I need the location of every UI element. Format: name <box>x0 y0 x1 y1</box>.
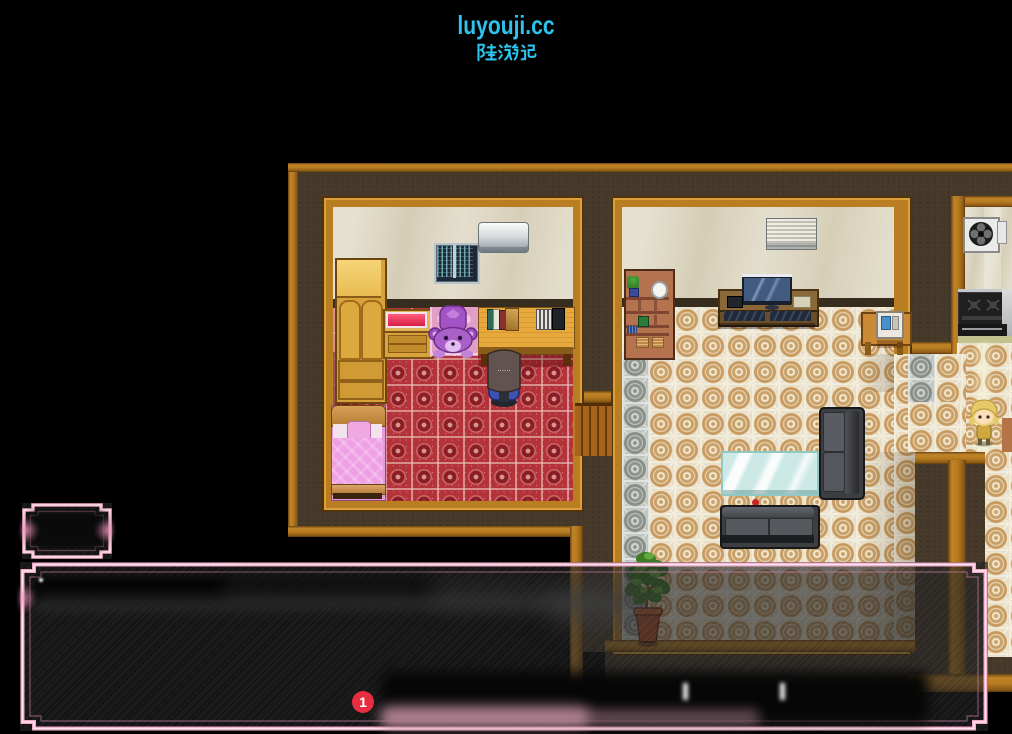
svg-text:......: ...... <box>497 364 510 373</box>
